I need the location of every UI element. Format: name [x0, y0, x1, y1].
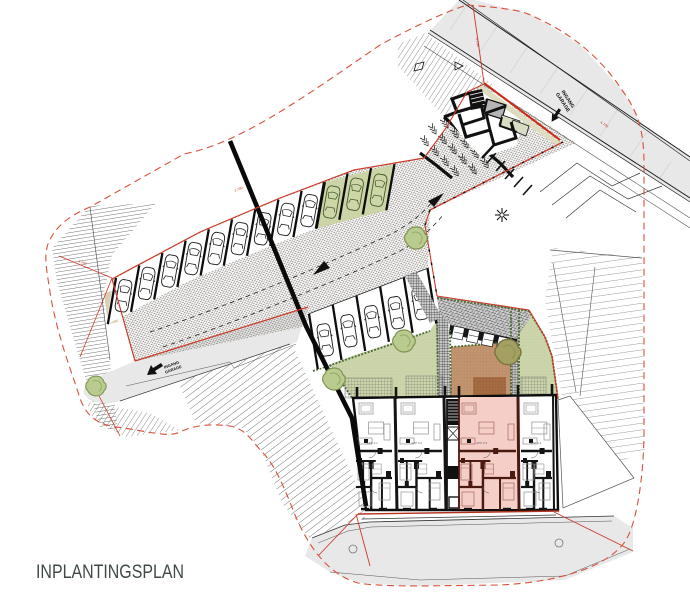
- svg-text:APP 0.1: APP 0.1: [367, 441, 378, 445]
- svg-text:INPLANTINGSPLAN: INPLANTINGSPLAN: [36, 561, 184, 583]
- svg-text:APP 0.4: APP 0.4: [530, 441, 541, 445]
- svg-text:APP 0.3: APP 0.3: [476, 441, 487, 445]
- svg-text:APP 0.2: APP 0.2: [411, 441, 422, 445]
